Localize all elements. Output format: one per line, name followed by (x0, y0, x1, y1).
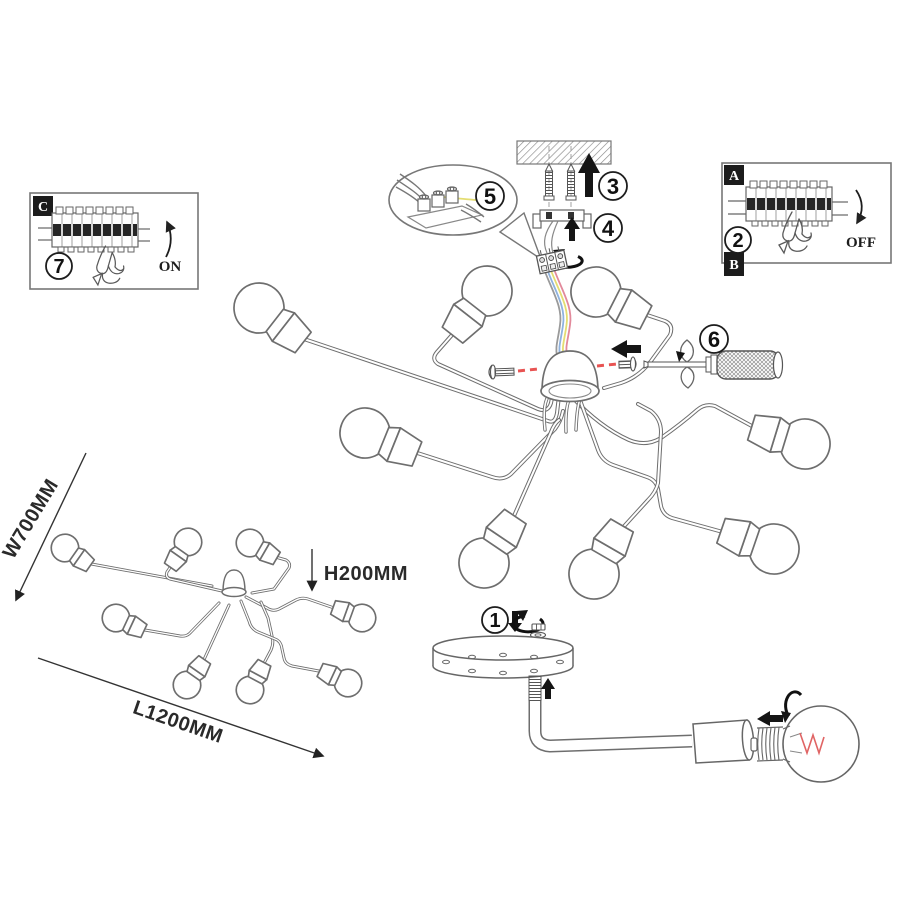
power-off-inset: A B OFF 2 (722, 163, 891, 276)
canopy-screw-right (619, 357, 636, 371)
screw-icon (566, 164, 576, 200)
ceiling (517, 141, 611, 164)
bulb (562, 258, 657, 339)
corner-label-b-text: B (729, 258, 738, 273)
mini-canopy (222, 570, 246, 597)
bulb (168, 652, 216, 704)
bulb (231, 656, 276, 708)
dimension-height: H200MM (312, 549, 408, 590)
step4-badge: 4 (594, 214, 622, 242)
bulb (560, 513, 644, 608)
bulb (744, 404, 836, 475)
height-dimension-label: H200MM (324, 563, 408, 585)
mounting-bracket (533, 210, 591, 228)
up-arrow-icon (541, 678, 555, 699)
threaded-nipple (529, 676, 541, 701)
bulb (433, 256, 522, 351)
bulb (314, 658, 366, 702)
step1-number: 1 (489, 610, 500, 632)
step1-badge: 1 (482, 607, 508, 633)
step2-badge: 2 (725, 227, 751, 253)
step3-number: 3 (607, 174, 619, 199)
step7-number: 7 (53, 256, 64, 278)
canopy-cup (541, 351, 599, 402)
screw-guide-dashes (518, 369, 538, 371)
mini-chandelier (46, 523, 380, 709)
lamp-arm (535, 701, 692, 746)
step1-assembly: 1 (433, 607, 859, 782)
screw-icon (544, 164, 554, 200)
step6-number: 6 (708, 327, 720, 352)
off-label: OFF (846, 235, 876, 251)
bulb (449, 503, 536, 598)
canopy-plate (433, 636, 573, 678)
bulb (332, 400, 426, 477)
corner-label-a-text: A (729, 169, 740, 184)
mounting-nut (532, 624, 545, 630)
light-bulb (783, 706, 859, 782)
step7-badge: 7 (46, 253, 72, 279)
bulb (713, 507, 806, 581)
bulb (328, 595, 379, 636)
bulb-base (751, 727, 783, 761)
terminal-callout-balloon: 5 (389, 165, 541, 259)
screwdriver (644, 351, 783, 379)
breaker-strip (746, 181, 832, 226)
screw-guide-dashes (597, 364, 617, 366)
step4-number: 4 (602, 216, 615, 241)
supply-wires (544, 269, 571, 356)
supply-leads (545, 221, 558, 253)
push-left-arrow-icon (611, 340, 641, 358)
bulb (46, 529, 98, 577)
on-label: ON (159, 259, 182, 275)
bulb (224, 273, 319, 362)
dimension-width: W700MM (0, 453, 86, 600)
step5-badge: 5 (476, 182, 504, 210)
main-chandelier (224, 245, 836, 608)
insert-left-arrow-icon (757, 711, 783, 726)
corner-label-c-text: C (38, 200, 48, 215)
step6-badge: 6 (700, 325, 728, 353)
length-dimension-label: L1200MM (130, 697, 226, 748)
screwdriver-handle (717, 351, 779, 379)
power-on-inset: C ON 7 (30, 193, 198, 289)
bulb (231, 524, 283, 570)
bulb (98, 600, 150, 644)
lamp-socket (693, 720, 755, 763)
installation-diagram: 3 4 (0, 0, 900, 900)
step3-badge: 3 (599, 172, 627, 200)
breaker-strip (52, 207, 138, 252)
ceiling-hatch (517, 141, 611, 164)
canopy-screw-left (489, 365, 514, 379)
step2-number: 2 (732, 230, 743, 252)
step5-number: 5 (484, 184, 496, 209)
bulb (159, 523, 207, 575)
